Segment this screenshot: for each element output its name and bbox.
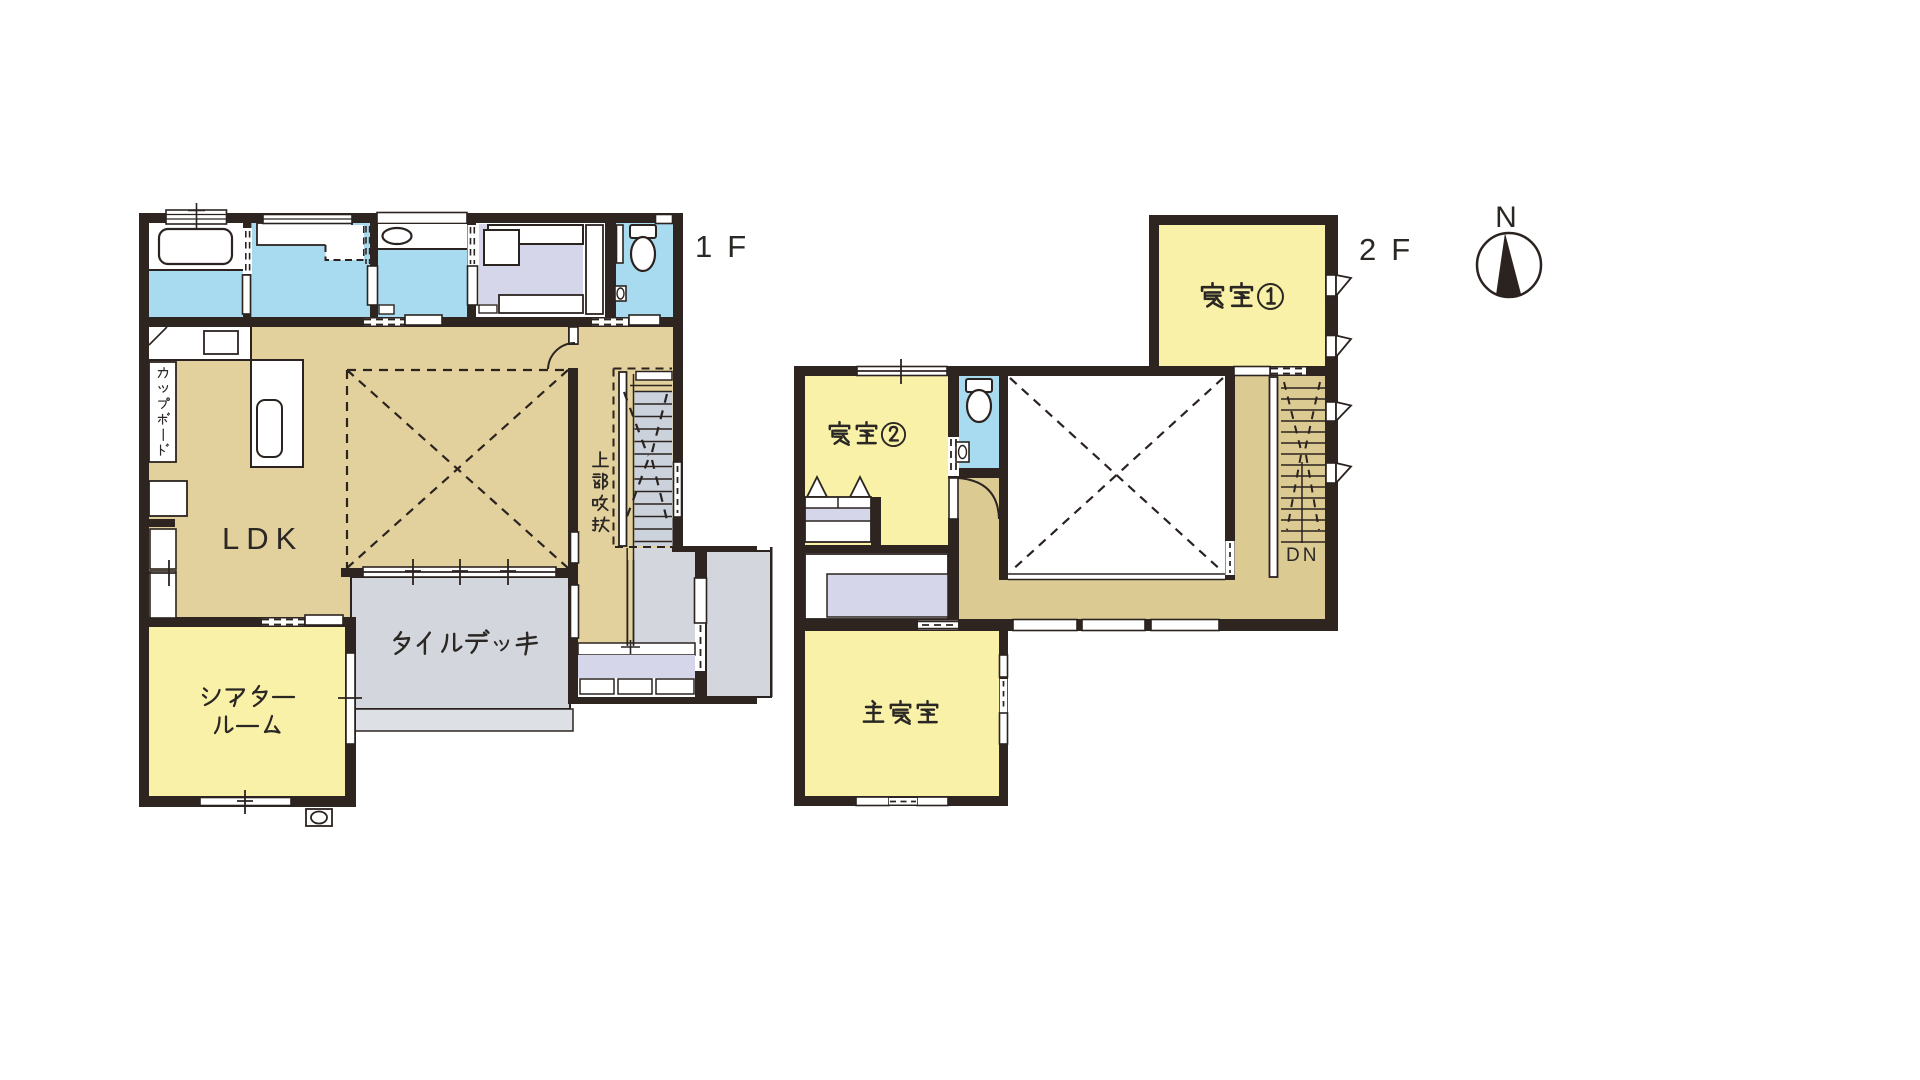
svg-text:LDK: LDK [222, 521, 303, 556]
svg-text:DN: DN [1286, 545, 1319, 566]
svg-text:1F: 1F [695, 229, 761, 264]
svg-text:N: N [1495, 201, 1517, 234]
svg-text:2F: 2F [1359, 232, 1425, 267]
